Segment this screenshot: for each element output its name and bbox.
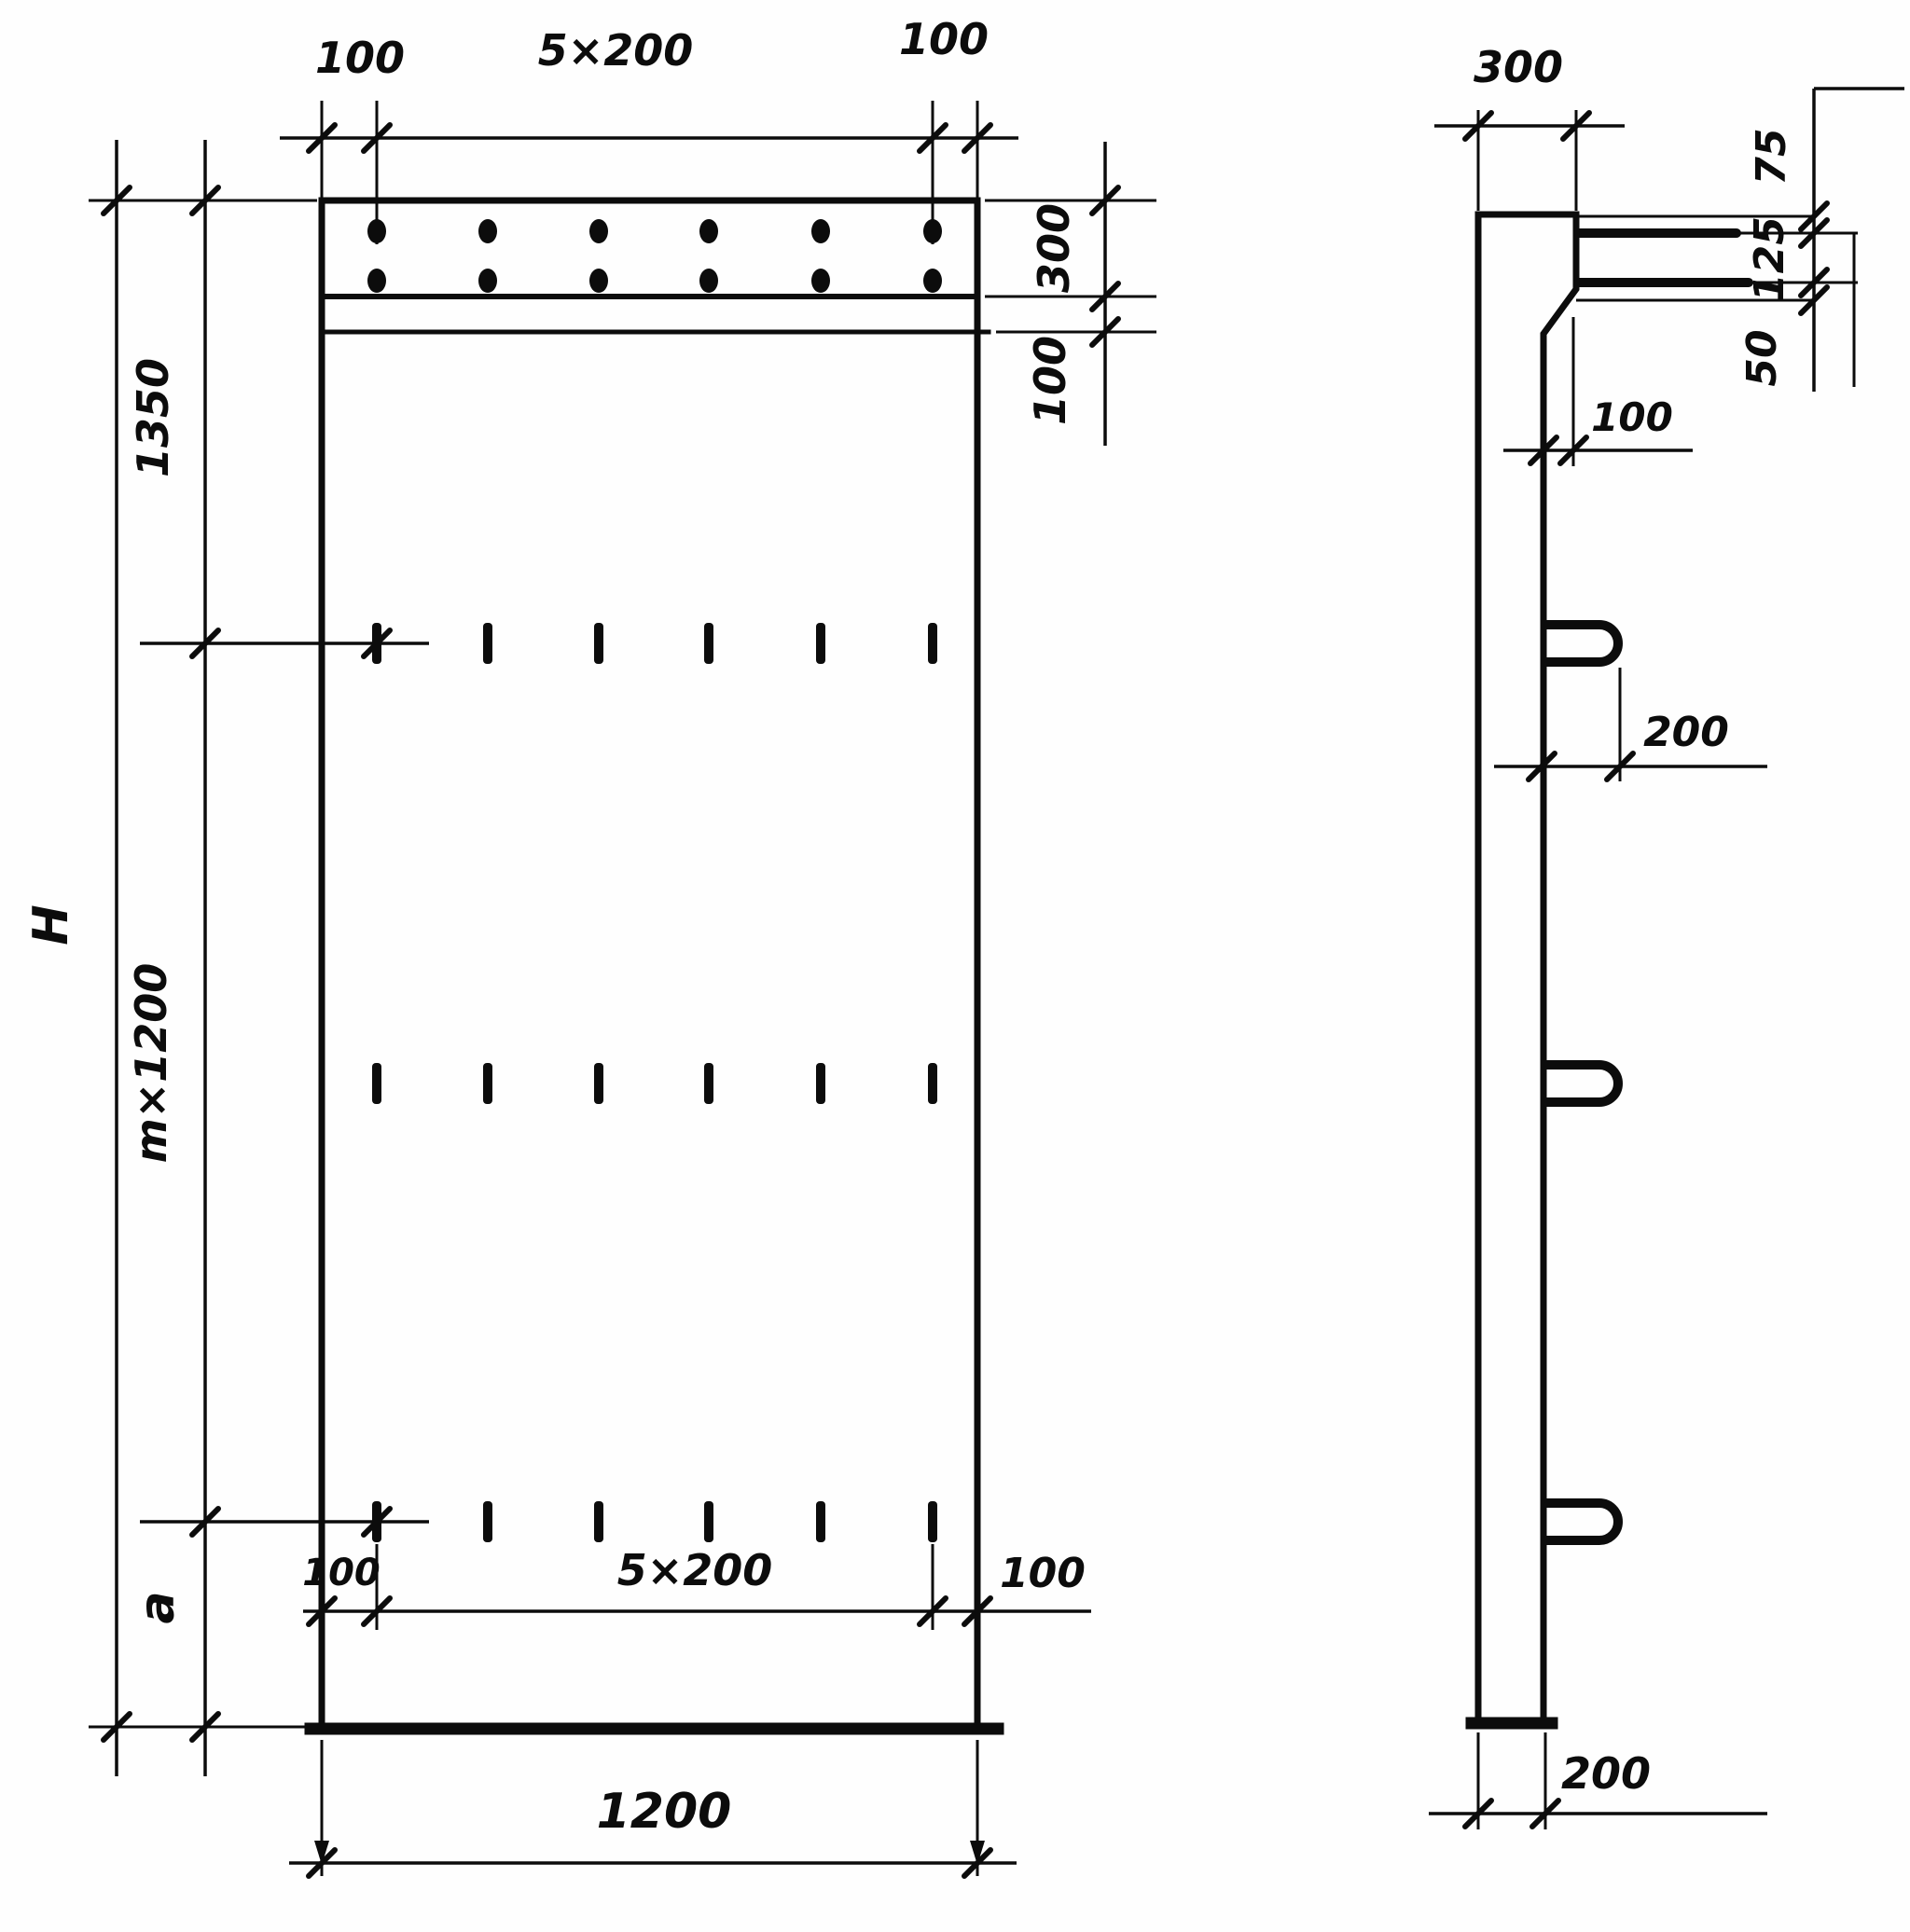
slot-dash — [483, 623, 492, 664]
lifting-loop — [1545, 1503, 1618, 1540]
anchor-hole-dot — [699, 219, 718, 243]
side-view: 75 125 50 300 100 — [1429, 42, 1904, 1829]
anchor-hole-dot — [811, 269, 830, 293]
front-width-dimension: 1200 — [289, 1740, 1017, 1876]
dim-bar-125: 125 — [1746, 216, 1793, 302]
slot-dash — [928, 1063, 937, 1104]
anchor-hole-dot — [811, 219, 830, 243]
front-panel-outline — [322, 200, 977, 1725]
lifting-loop — [1545, 625, 1618, 662]
dim-gap-100: 100 — [1025, 336, 1075, 425]
dim-bottom-5x200: 5×200 — [617, 1545, 773, 1595]
drawing-sheet: 100 5×200 100 300 100 — [0, 0, 1910, 1932]
lifting-loop — [1545, 1065, 1618, 1102]
side-top-thickness-dimension: 300 — [1434, 42, 1625, 211]
side-bottom-thickness-dimension: 200 — [1429, 1732, 1767, 1829]
dim-width-1200: 1200 — [597, 1784, 732, 1840]
slot-dash — [816, 623, 825, 664]
slot-rows — [372, 623, 937, 1542]
dim-top-right-100: 100 — [899, 14, 989, 64]
front-right-dimension-chain: 300 100 — [985, 142, 1156, 446]
dim-step-100: 100 — [1591, 394, 1673, 440]
slot-dash — [594, 1501, 603, 1542]
slot-dash — [483, 1063, 492, 1104]
anchor-hole-dot — [589, 269, 608, 293]
side-panel-outline — [1478, 214, 1576, 1720]
anchor-hole-dot — [589, 219, 608, 243]
slot-dash — [704, 1501, 713, 1542]
slot-dash — [483, 1501, 492, 1542]
slot-dash — [372, 1063, 381, 1104]
side-step-dimension: 100 — [1503, 317, 1693, 466]
dim-side-300: 300 — [1474, 42, 1563, 92]
anchor-hole-dot — [699, 269, 718, 293]
slot-dash — [704, 1063, 713, 1104]
anchor-hole-dot — [478, 269, 497, 293]
anchor-hole-dot — [478, 219, 497, 243]
anchor-hole-dot — [367, 269, 386, 293]
dim-band-300: 300 — [1029, 203, 1079, 293]
dim-bottom-200: 200 — [1561, 1748, 1651, 1799]
slot-dash — [594, 623, 603, 664]
lifting-loops — [1545, 625, 1618, 1540]
panel-working-drawing: 100 5×200 100 300 100 — [0, 0, 1910, 1932]
front-bottom-dimension-chain: 100 5×200 100 — [302, 1544, 1091, 1630]
slot-dash — [928, 623, 937, 664]
dim-top-left-100: 100 — [315, 33, 405, 83]
dim-bottom-left-100: 100 — [302, 1552, 381, 1594]
front-view: 100 5×200 100 300 100 — [23, 14, 1156, 1876]
dim-a: a — [130, 1591, 186, 1623]
slot-dash — [928, 1501, 937, 1542]
dim-bar-75: 75 — [1748, 128, 1795, 185]
dim-mx1200: m×1200 — [126, 963, 176, 1164]
front-left-dimension-chains: H 1350 m×1200 a — [23, 140, 429, 1776]
dim-bar-50: 50 — [1738, 329, 1786, 386]
front-top-dimension-chain: 100 5×200 100 — [280, 14, 1018, 244]
dim-top-5x200: 5×200 — [538, 25, 694, 76]
slot-dash — [816, 1063, 825, 1104]
slot-dash — [816, 1501, 825, 1542]
dim-loop-200: 200 — [1643, 709, 1729, 756]
loop-projection-dimension: 200 — [1494, 668, 1767, 781]
side-bar-dimension-chain: 75 125 50 — [1738, 89, 1904, 392]
dim-overall-H: H — [23, 904, 79, 945]
dim-bottom-right-100: 100 — [1000, 1550, 1086, 1597]
slot-dash — [704, 623, 713, 664]
slot-dash — [594, 1063, 603, 1104]
dim-1350: 1350 — [128, 358, 178, 477]
anchor-hole-dot — [923, 269, 942, 293]
anchor-hole-rows — [367, 219, 942, 293]
